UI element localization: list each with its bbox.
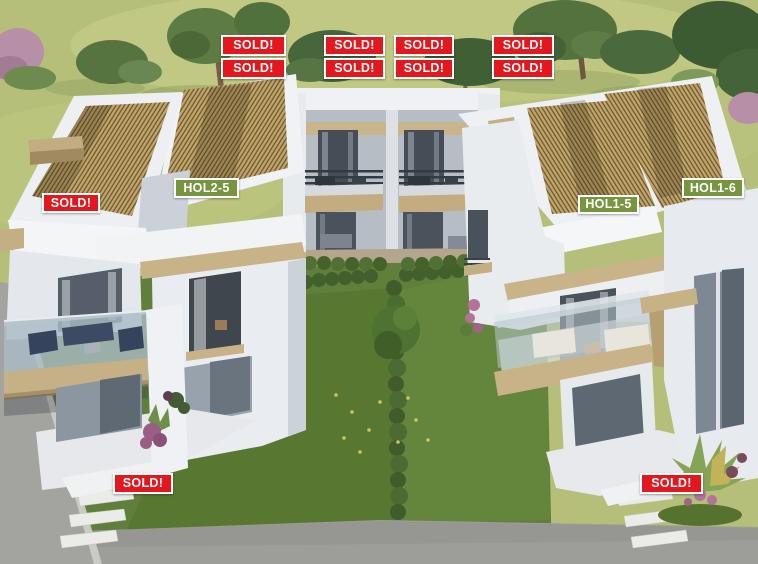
- property-render: SOLD! SOLD! SOLD! SOLD! SOLD! SOLD! SOLD…: [0, 0, 758, 564]
- badge-sold-left-roof: SOLD!: [42, 193, 100, 213]
- badge-sold-top-2-upper: SOLD!: [324, 35, 385, 56]
- badge-unit-hol2-5[interactable]: HOL2-5: [174, 178, 239, 198]
- badge-sold-top-1-upper: SOLD!: [221, 35, 286, 56]
- badge-sold-top-3-upper: SOLD!: [394, 35, 454, 56]
- badge-sold-top-4-upper: SOLD!: [492, 35, 554, 56]
- badge-sold-top-4-lower: SOLD!: [492, 58, 554, 79]
- badge-sold-top-2-lower: SOLD!: [324, 58, 385, 79]
- badge-sold-top-1-lower: SOLD!: [221, 58, 286, 79]
- badge-unit-hol1-6[interactable]: HOL1-6: [682, 178, 744, 198]
- badge-sold-top-3-lower: SOLD!: [394, 58, 454, 79]
- badge-unit-hol1-5[interactable]: HOL1-5: [578, 195, 639, 214]
- badge-sold-bottom-right: SOLD!: [640, 473, 703, 494]
- badge-sold-bottom-left: SOLD!: [113, 473, 173, 494]
